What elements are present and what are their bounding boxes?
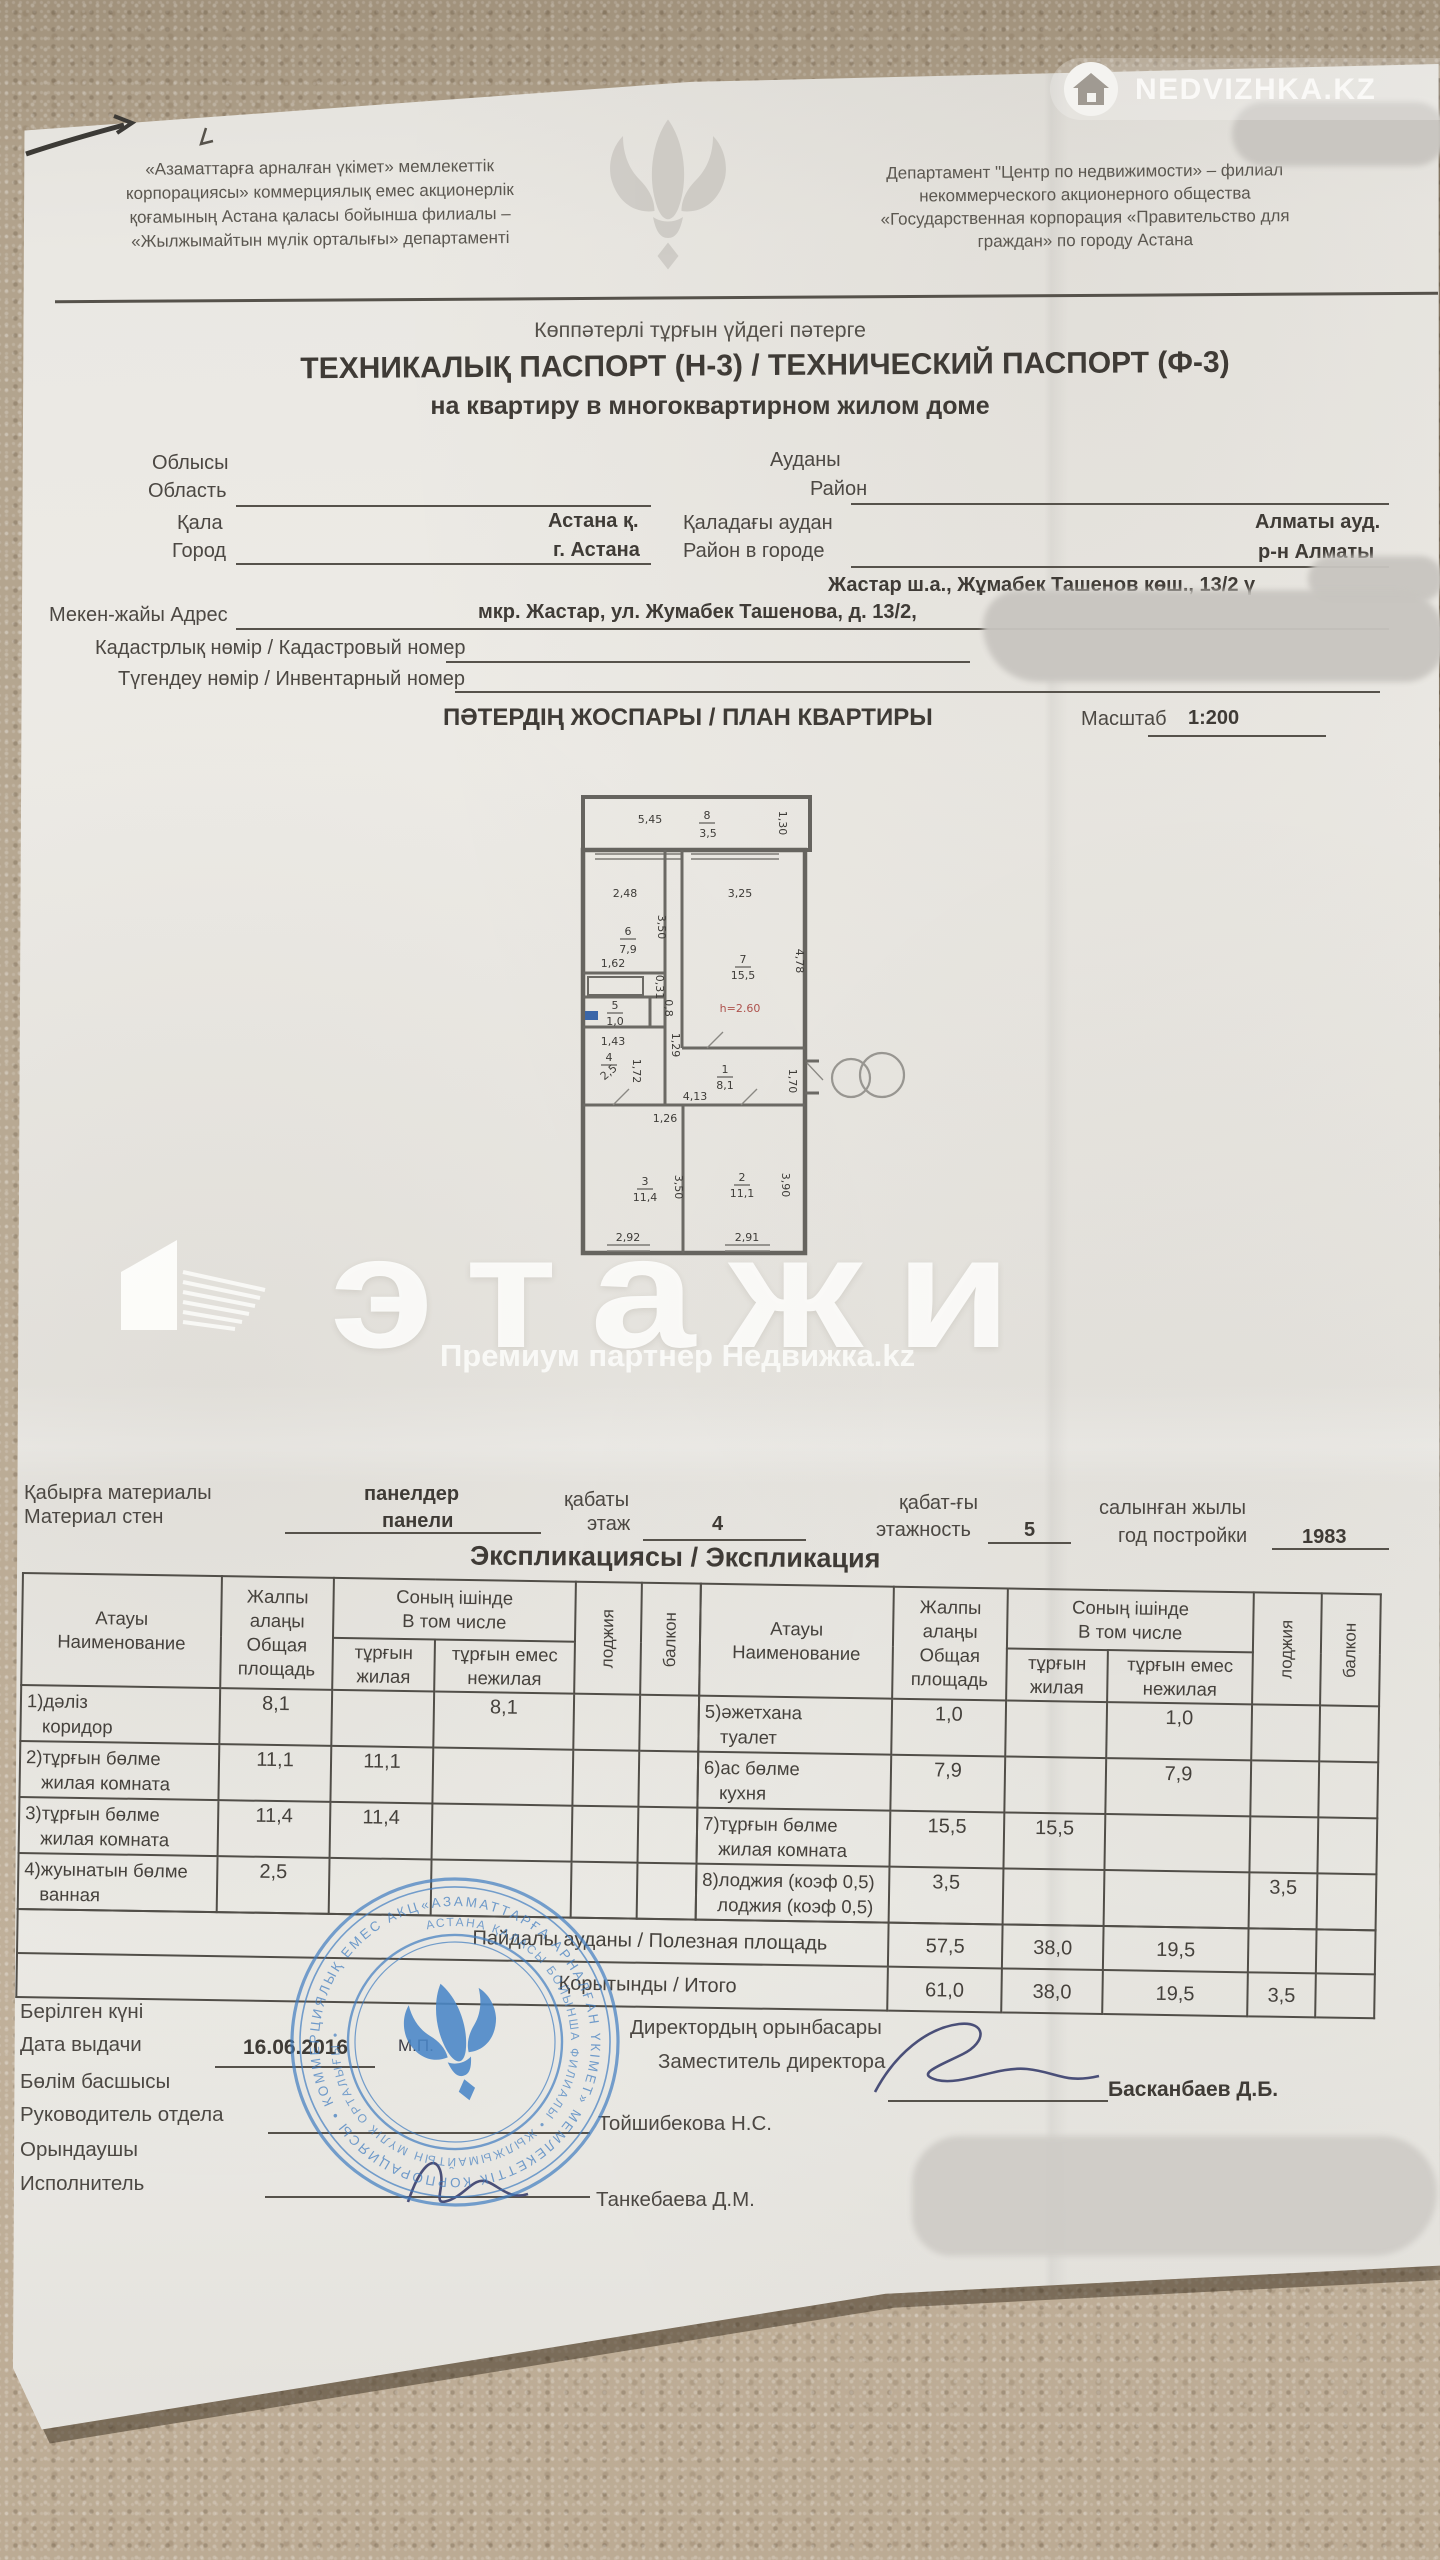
cell-living xyxy=(331,1690,434,1748)
cell-total: 15,5 xyxy=(889,1811,1004,1869)
cell-nonliving: 8,1 xyxy=(433,1692,574,1750)
city-value-kz: Астана қ. xyxy=(548,510,639,534)
field-region-ru: Область xyxy=(148,480,227,504)
plan-scale-value: 1:200 xyxy=(1188,707,1239,731)
floor-underline xyxy=(643,1539,806,1541)
plan-title: ПӘТЕРДІҢ ЖОСПАРЫ / ПЛАН КВАРТИРЫ xyxy=(443,704,933,732)
cell-nonliving xyxy=(432,1748,573,1806)
field-district-ru: Район xyxy=(810,478,867,502)
totals-value: 19,5 xyxy=(1102,1970,1248,2016)
district-underline xyxy=(851,503,1389,505)
cell-name: 3)тұрғын бөлме жилая комната xyxy=(19,1797,219,1856)
plan-dimension-label: 5 xyxy=(612,999,619,1012)
deputy-signature xyxy=(865,2012,1130,2112)
wall-underline xyxy=(285,1532,541,1534)
field-city-kz: Қала xyxy=(177,512,223,536)
cell-living xyxy=(1005,1701,1107,1759)
executor-label-kz: Орындаушы xyxy=(20,2138,138,2162)
totals-value: 57,5 xyxy=(888,1923,1003,1969)
cell-total: 11,1 xyxy=(218,1744,331,1802)
plan-dimension-label: 3,25 xyxy=(728,887,753,900)
city-underline xyxy=(236,563,651,565)
header-right-org: Департамент "Центр по недвижимости» – фи… xyxy=(845,158,1326,254)
year-label-ru: год постройки xyxy=(1118,1525,1247,1549)
col-header-including: Соның ішінде В том числе xyxy=(1007,1588,1254,1652)
field-city-district-ru: Район в городе xyxy=(683,540,824,564)
plan-dimension-label: 1,70 xyxy=(786,1069,799,1094)
col-header-balcony: балкон xyxy=(640,1583,701,1696)
totals-value xyxy=(1316,1929,1376,1974)
tulip-emblem xyxy=(595,110,745,280)
nedvizhka-watermark-band: NEDVIZHKA.KZ xyxy=(1050,58,1440,120)
cell-name: 6)ас бөлме кухня xyxy=(697,1752,891,1811)
cell-living: 11,1 xyxy=(330,1746,433,1804)
address-ru-value: мкр. Жастар, ул. Жумабек Ташенова, д. 13… xyxy=(478,601,917,625)
col-header-total: Жалпы алаңы Общая площадь xyxy=(892,1587,1008,1701)
plan-dimension-label: 0,8 xyxy=(662,999,675,1017)
plan-dimension-label: 3,50 xyxy=(655,915,668,940)
plan-dimension-label: 4,13 xyxy=(683,1090,708,1103)
plan-dimension-label: 1 xyxy=(722,1063,729,1076)
col-header-nonliving: тұрғын емес нежилая xyxy=(1107,1650,1253,1704)
address-label: Мекен-жайы Адрес xyxy=(49,604,228,628)
field-district-kz: Ауданы xyxy=(770,449,841,473)
entry-landing-arcs xyxy=(832,1053,904,1097)
year-label-kz: салынған жылы xyxy=(1099,1497,1246,1521)
cell-total: 11,4 xyxy=(218,1800,331,1858)
plan-dimension-label: 1,29 xyxy=(669,1033,682,1058)
totals-value xyxy=(1248,1928,1317,1973)
plan-dimension-label: 6 xyxy=(625,925,632,938)
col-header-living: тұрғын жилая xyxy=(1006,1648,1108,1702)
col-header-nonliving: тұрғын емес нежилая xyxy=(434,1639,575,1693)
cell-total: 1,0 xyxy=(891,1699,1006,1757)
plan-dimension-label: 1,72 xyxy=(630,1059,643,1084)
floors-label-kz: қабат-ғы xyxy=(899,1492,978,1516)
cell-balcony xyxy=(639,1695,699,1752)
plan-dimension-label: 1,62 xyxy=(601,957,626,970)
dept-head-label-kz: Бөлім басшысы xyxy=(20,2070,170,2094)
plan-dimension-label: 3,5 xyxy=(699,827,717,840)
cell-name: 5)әжетхана туалет xyxy=(698,1696,892,1755)
col-header-name: Атауы Наименование xyxy=(21,1573,222,1688)
col-header-living: тұрғын жилая xyxy=(332,1638,435,1692)
cell-name: 8)лоджия (коэф 0,5) лоджия (коэф 0,5) xyxy=(696,1864,890,1923)
stamp-tulip-icon xyxy=(396,1973,515,2112)
inventory-label: Түгендеу нөмір / Инвентарный номер xyxy=(118,668,465,692)
cell-living: 15,5 xyxy=(1003,1813,1105,1871)
inventory-underline xyxy=(455,691,1380,693)
floor-label-kz: қабаты xyxy=(564,1489,629,1513)
cell-living xyxy=(1004,1757,1106,1815)
plan-dimension-label: 7,9 xyxy=(619,943,637,956)
cell-nonliving xyxy=(1104,1870,1250,1928)
region-underline xyxy=(236,505,651,507)
cell-nonliving: 7,9 xyxy=(1105,1758,1251,1816)
year-underline xyxy=(1272,1548,1389,1550)
plan-dimension-label: 1,30 xyxy=(776,811,789,836)
col-header-loggia: лоджия xyxy=(574,1582,642,1695)
explication-table: Атауы Наименование Жалпы алаңы Общая пло… xyxy=(15,1572,1382,2019)
deputy-label-ru: Заместитель директора xyxy=(658,2050,885,2074)
plan-dimension-label: 3,50 xyxy=(672,1175,685,1200)
col-header-balcony: балкон xyxy=(1320,1593,1381,1706)
floors-value: 5 xyxy=(1024,1519,1035,1543)
cell-loggia xyxy=(573,1694,640,1751)
plan-dimension-label: 4,78 xyxy=(793,949,806,974)
plan-dimension-label: 1,43 xyxy=(601,1035,626,1048)
plan-dimension-label: 7 xyxy=(740,953,747,966)
plan-dimension-label: 3 xyxy=(642,1175,649,1188)
cadastral-underline xyxy=(446,661,970,663)
cell-balcony xyxy=(638,1807,698,1864)
cadastral-label: Кадастрлық нөмір / Кадастровый номер xyxy=(95,637,466,661)
totals-value: 38,0 xyxy=(1002,1924,1104,1970)
wall-material-label-ru: Материал стен xyxy=(24,1506,163,1530)
executor-label-ru: Исполнитель xyxy=(20,2172,144,2196)
totals-value: 3,5 xyxy=(1247,1972,1316,2017)
col-header-name: Атауы Наименование xyxy=(699,1584,894,1699)
deputy-name: Басканбаев Д.Б. xyxy=(1108,2078,1278,2103)
totals-value xyxy=(1315,1973,1375,2018)
header-left-org: «Азаматтарға арналған үкімет» мемлекетті… xyxy=(100,154,541,255)
city-district-underline xyxy=(851,566,1389,568)
dept-head-label-ru: Руководитель отдела xyxy=(20,2103,223,2127)
cell-living xyxy=(1003,1869,1105,1927)
field-city-ru: Город xyxy=(172,540,226,564)
cell-balcony xyxy=(1317,1817,1377,1874)
city-value-ru: г. Астана xyxy=(553,539,640,563)
explication-table-right: Атауы Наименование Жалпы алаңы Общая пло… xyxy=(695,1583,1382,1932)
plan-dimension-label: 15,5 xyxy=(731,969,756,982)
explication-table-left: Атауы Наименование Жалпы алаңы Общая пло… xyxy=(17,1572,702,1921)
explication-heading: Экспликациясы / Экспликация xyxy=(470,1541,881,1576)
cell-name: 4)жуынатын бөлме ванная xyxy=(18,1853,218,1912)
plan-dimension-label: 3,90 xyxy=(779,1173,792,1198)
totals-value: 19,5 xyxy=(1103,1926,1249,1972)
cell-balcony xyxy=(638,1751,698,1808)
floors-underline xyxy=(988,1542,1071,1544)
floors-label-ru: этажность xyxy=(876,1519,971,1543)
cell-loggia xyxy=(572,1750,639,1807)
etazhi-subtitle: Премиум партнер Недвижка.kz xyxy=(440,1338,915,1375)
header-divider xyxy=(55,292,1438,303)
redaction-blob-bottom xyxy=(912,2136,1437,2256)
plan-dimension-label: 8,1 xyxy=(716,1079,734,1092)
cell-balcony xyxy=(637,1863,697,1920)
cell-nonliving xyxy=(1104,1814,1250,1872)
city-district-value-kz: Алматы ауд. xyxy=(1255,511,1380,535)
title-main: ТЕХНИКАЛЫҚ ПАСПОРТ (Н-3) / ТЕХНИЧЕСКИЙ П… xyxy=(270,345,1260,387)
plan-dimension-label: 1,0 xyxy=(606,1015,624,1028)
cell-loggia xyxy=(1251,1704,1320,1761)
plan-dimension-label: 1,26 xyxy=(653,1112,678,1125)
cell-name: 1)дәліз коридор xyxy=(20,1685,220,1744)
col-header-including: Соның ішінде В том числе xyxy=(333,1578,576,1642)
cell-total: 7,9 xyxy=(890,1755,1005,1813)
col-header-loggia: лоджия xyxy=(1252,1592,1322,1705)
field-region-kz: Облысы xyxy=(152,452,229,476)
cell-total: 3,5 xyxy=(889,1867,1004,1925)
wall-material-label-kz: Қабырға материалы xyxy=(24,1482,212,1506)
plan-dimension-label: 2 xyxy=(739,1171,746,1184)
cell-living: 11,4 xyxy=(330,1802,433,1860)
issue-date-label-ru: Дата выдачи xyxy=(20,2033,142,2057)
wall-material-value-kz: панелдер xyxy=(364,1483,459,1507)
cell-balcony xyxy=(1317,1873,1377,1930)
photo-scene: «Азаматтарға арналған үкімет» мемлекетті… xyxy=(0,0,1440,2560)
title-kz-small: Көппәтерлі тұрғын үйдегі пәтерге xyxy=(450,318,950,343)
plan-scale-label: Масштаб xyxy=(1081,708,1167,732)
cell-name: 7)тұрғын бөлме жилая комната xyxy=(697,1808,891,1867)
cell-loggia xyxy=(1250,1760,1319,1817)
wall-material-value-ru: панели xyxy=(382,1510,453,1534)
floor-value: 4 xyxy=(712,1513,723,1537)
plan-dimension-label: h=2.60 xyxy=(720,1002,761,1015)
scale-underline xyxy=(1148,735,1326,737)
issue-date-label-kz: Берілген күні xyxy=(20,2000,143,2024)
totals-value: 38,0 xyxy=(1001,1968,1103,2014)
building-icon xyxy=(115,1232,310,1337)
redaction-blob-address xyxy=(983,590,1440,682)
plan-dimension-label: 2,48 xyxy=(613,887,638,900)
cell-loggia xyxy=(1249,1816,1318,1873)
cell-balcony xyxy=(1319,1705,1379,1762)
cell-name: 2)тұрғын бөлме жилая комната xyxy=(19,1741,219,1800)
floor-label-ru: этаж xyxy=(587,1513,630,1537)
executor-name: Танкебаева Д.М. xyxy=(596,2188,755,2212)
cell-nonliving: 1,0 xyxy=(1106,1702,1252,1760)
totals-value: 61,0 xyxy=(887,1967,1002,2013)
col-header-total: Жалпы алаңы Общая площадь xyxy=(220,1576,334,1690)
field-city-district-kz: Қаладағы аудан xyxy=(683,512,833,536)
nedvizhka-brand-text: NEDVIZHKA.KZ xyxy=(1135,72,1376,107)
plan-blue-mark xyxy=(585,1011,598,1020)
cell-total: 8,1 xyxy=(219,1688,332,1746)
plan-dimension-label: 5,45 xyxy=(638,813,663,826)
house-icon xyxy=(1062,60,1120,118)
title-ru-sub: на квартиру в многоквартирном жилом доме xyxy=(420,392,1000,422)
plan-dimension-label: 0,31 xyxy=(653,975,666,1000)
deputy-label-kz: Директордың орынбасары xyxy=(630,2016,882,2040)
cell-balcony xyxy=(1318,1761,1378,1818)
plan-dimension-label: 8 xyxy=(704,809,711,822)
year-value: 1983 xyxy=(1302,1526,1347,1550)
cell-loggia: 3,5 xyxy=(1249,1872,1318,1929)
